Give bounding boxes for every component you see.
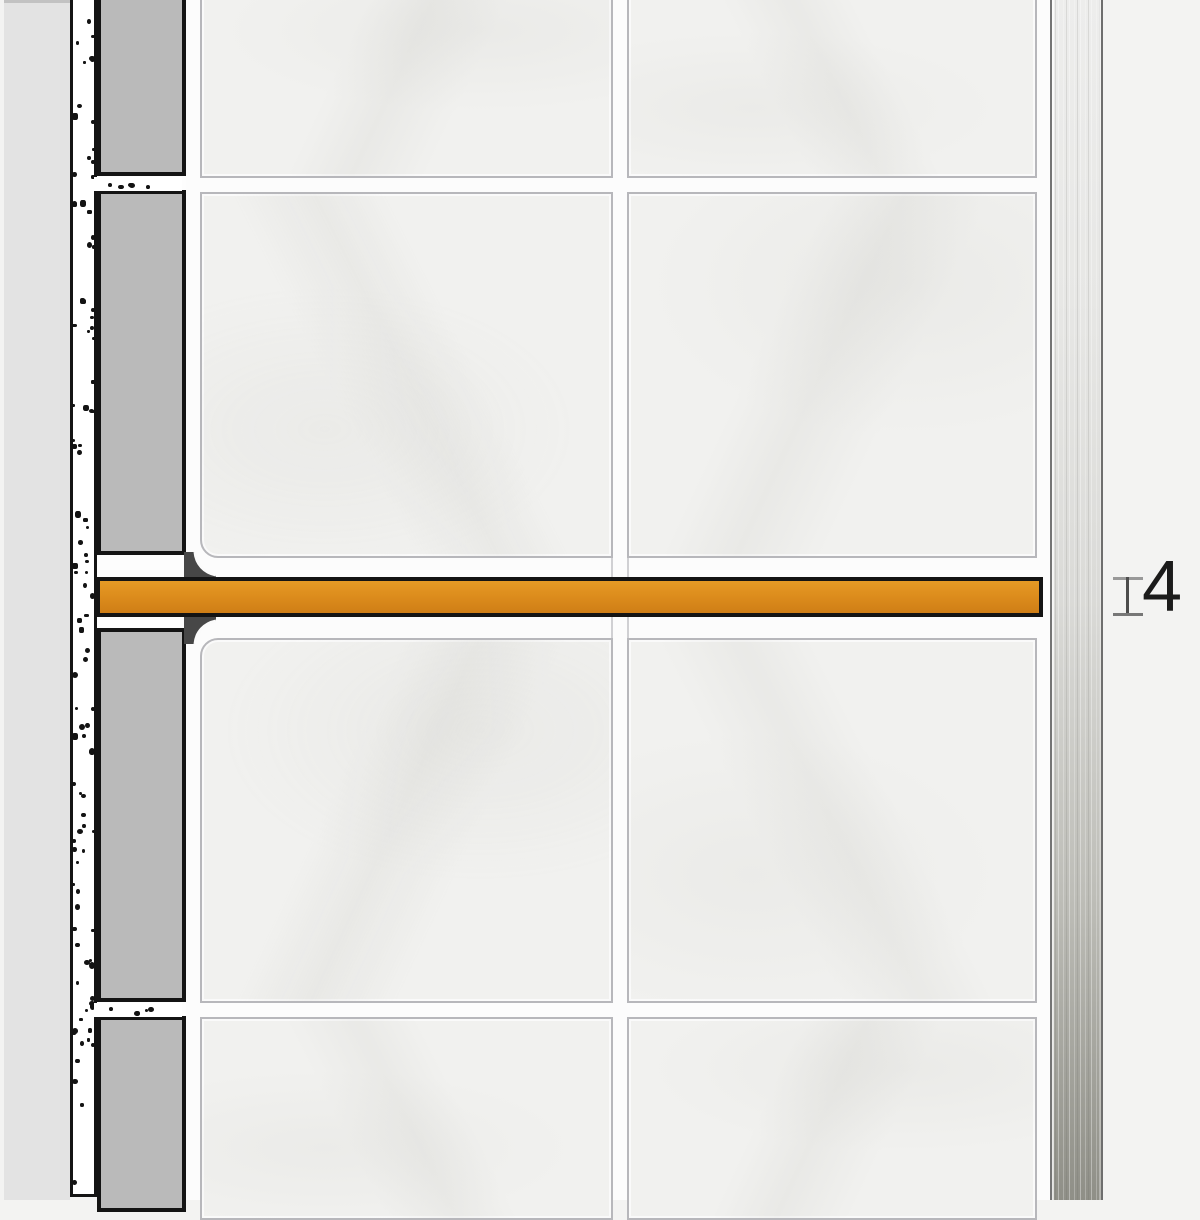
tile	[627, 638, 1037, 1003]
tile	[200, 1017, 613, 1220]
grout-edge-line	[627, 617, 629, 638]
grout-edge-line	[611, 558, 613, 577]
tile	[627, 0, 1037, 178]
grout-edge-line	[627, 558, 629, 577]
tile	[627, 192, 1037, 558]
tile	[200, 0, 613, 178]
wall-substrate	[4, 0, 70, 1200]
tile-section-block	[97, 0, 186, 176]
grout-edge-line	[611, 617, 613, 638]
mortar-adhesive-layer	[70, 0, 97, 1197]
dimension-cap-bottom	[1113, 613, 1143, 616]
tile	[627, 1017, 1037, 1220]
tile	[200, 192, 613, 558]
dimension-stem	[1126, 577, 1129, 616]
shelf-profile-bar	[96, 577, 1043, 617]
tile-section-block	[97, 628, 186, 1002]
tile	[200, 638, 613, 1003]
tile-section-joint	[94, 1003, 182, 1017]
tile-section-block	[97, 1016, 186, 1212]
diagram-canvas: 4	[0, 0, 1200, 1200]
stainless-edge-profile	[1050, 0, 1103, 1200]
tile-section-block	[97, 190, 186, 555]
tile-section-joint	[94, 177, 182, 191]
dimension-value: 4	[1142, 551, 1200, 631]
